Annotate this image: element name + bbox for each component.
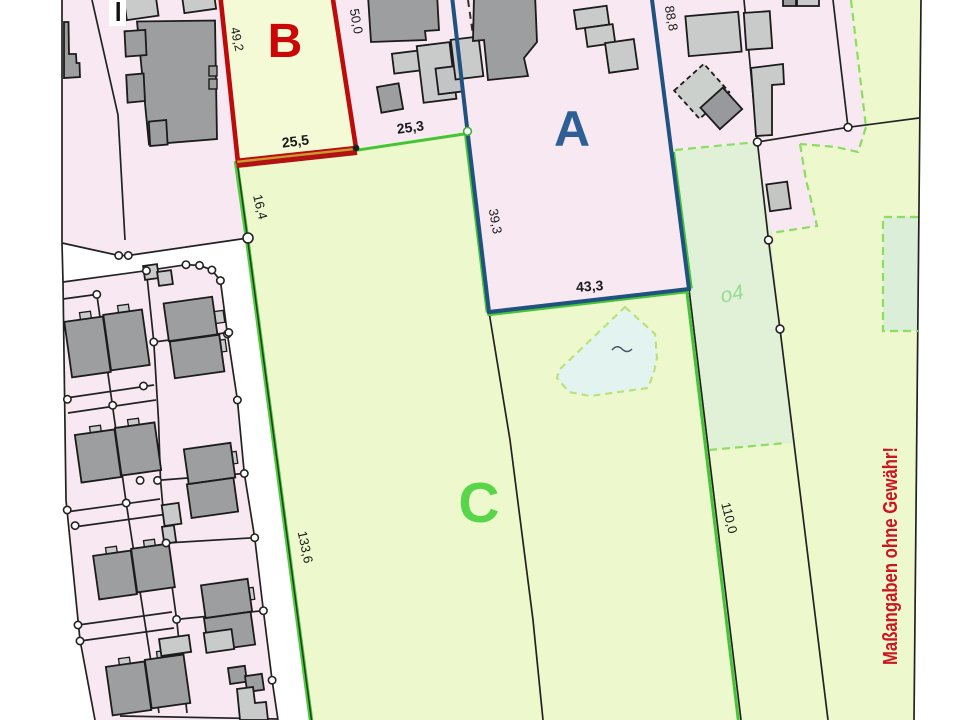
svg-text:25,5: 25,5	[281, 131, 310, 150]
svg-text:o4: o4	[718, 281, 746, 308]
svg-text:B: B	[268, 15, 303, 68]
svg-text:C: C	[458, 471, 499, 535]
svg-text:Maßangaben ohne Gewähr!: Maßangaben ohne Gewähr!	[880, 447, 902, 665]
svg-text:A: A	[554, 101, 590, 157]
svg-text:43,3: 43,3	[576, 277, 605, 295]
